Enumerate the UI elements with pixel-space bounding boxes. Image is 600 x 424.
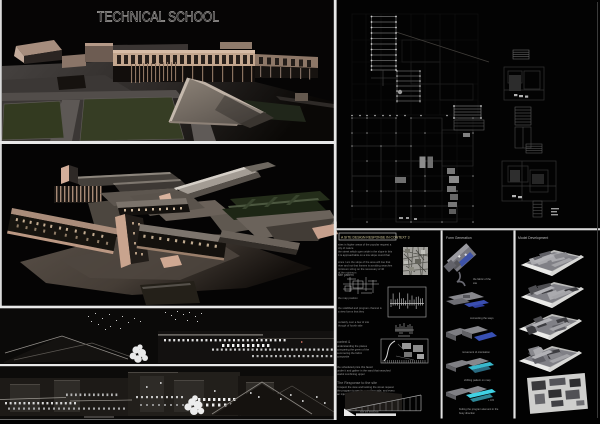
svg-text:river and not that frames is a: river and not that frames is avoiding se… <box>338 264 393 268</box>
svg-text:connecting the ways: connecting the ways <box>470 316 494 320</box>
svg-text:+ 180: + 180 <box>488 399 495 402</box>
svg-text:city of nature: city of nature <box>338 246 354 250</box>
svg-text:since I am the slope of the ar: since I am the slope of the area will ri… <box>338 260 391 264</box>
svg-text:context &: context & <box>337 340 351 344</box>
svg-text:minimum string on the necessar: minimum string on the necessary of 40 <box>338 267 385 271</box>
svg-text:The Response to the site: The Response to the site <box>337 381 377 385</box>
svg-text:a view forms that they: a view forms that they <box>338 310 365 314</box>
svg-text:useful combining upper: useful combining upper <box>337 372 365 376</box>
svg-text:the map position: the map position <box>338 296 358 300</box>
svg-text:Model Development: Model Development <box>518 236 548 240</box>
svg-text:busy direction: busy direction <box>459 411 476 415</box>
svg-text:I inspect the view and looking: I inspect the view and looking the stree… <box>337 385 394 389</box>
svg-text:composite: composite <box>337 355 350 359</box>
svg-text:the street which open wide in: the street which open wide in the slope … <box>338 250 393 254</box>
svg-text:the fabric of the: the fabric of the <box>473 277 491 281</box>
svg-text:movement of orientation: movement of orientation <box>462 350 490 354</box>
svg-text:though of fourth side: though of fourth side <box>338 324 363 328</box>
svg-text:comparing the green of the: comparing the green of the <box>337 348 370 352</box>
svg-text:finding the program element in: finding the program element in the <box>459 407 499 411</box>
svg-text:the scheduled price this faced: the scheduled price this faced <box>337 365 373 369</box>
svg-text:with the seasonal: with the seasonal <box>360 411 379 414</box>
svg-text:it is approachable on a low sl: it is approachable on a low slope round … <box>338 253 390 257</box>
svg-text:site: site <box>473 281 478 285</box>
svg-text:A SITE DESIGN RESPONSE IN CONT: A SITE DESIGN RESPONSE IN CONTEXT 3 <box>341 235 410 239</box>
svg-text:TECHNICAL SCHOOL: TECHNICAL SCHOOL <box>97 10 219 26</box>
svg-text:under it and gather in the san: under it and gather in the sand that sea… <box>337 369 391 373</box>
svg-text:the solidified and program cha: the solidified and program channel is <box>338 306 382 310</box>
svg-text:summering the fabric: summering the fabric <box>337 351 363 355</box>
svg-text:Form Generation: Form Generation <box>446 236 472 240</box>
svg-text:sites in higher areas of the p: sites in higher areas of the popular req… <box>338 243 392 247</box>
svg-text:understanding the places: understanding the places <box>337 344 368 348</box>
svg-text:shifting pattern on map: shifting pattern on map <box>464 378 491 382</box>
svg-text:site pattern: site pattern <box>338 273 354 277</box>
svg-text:certainly over a few of site: certainly over a few of site <box>338 320 370 324</box>
